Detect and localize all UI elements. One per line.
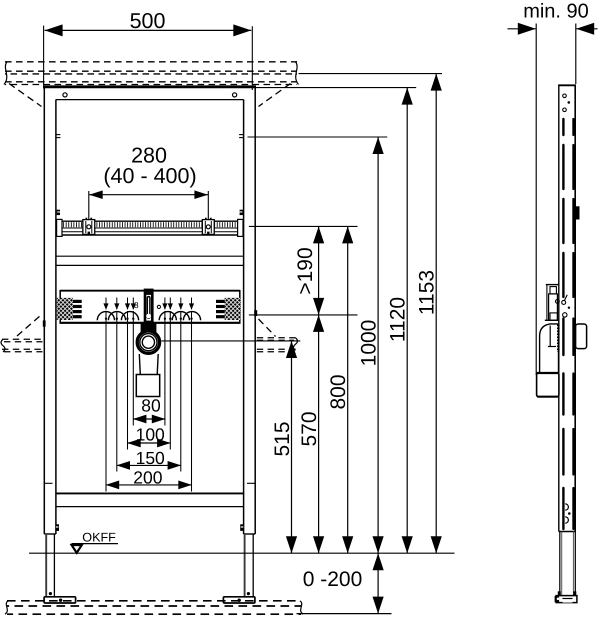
svg-text:570: 570 xyxy=(298,411,321,446)
svg-text:1000: 1000 xyxy=(357,320,380,367)
svg-text:OKFF: OKFF xyxy=(82,530,116,544)
svg-text:800: 800 xyxy=(327,374,350,409)
svg-text:0 -200: 0 -200 xyxy=(303,568,363,591)
svg-text:8: 8 xyxy=(134,300,139,310)
svg-text:>190: >190 xyxy=(294,247,317,294)
svg-text:1153: 1153 xyxy=(416,270,439,315)
svg-text:min. 90: min. 90 xyxy=(523,0,589,22)
svg-text:515: 515 xyxy=(271,421,294,456)
svg-text:80: 80 xyxy=(141,395,161,415)
svg-text:(40 - 400): (40 - 400) xyxy=(103,164,196,188)
svg-text:200: 200 xyxy=(133,467,162,487)
svg-text:1120: 1120 xyxy=(387,297,410,342)
svg-text:500: 500 xyxy=(130,9,166,33)
svg-text:150: 150 xyxy=(136,448,165,468)
